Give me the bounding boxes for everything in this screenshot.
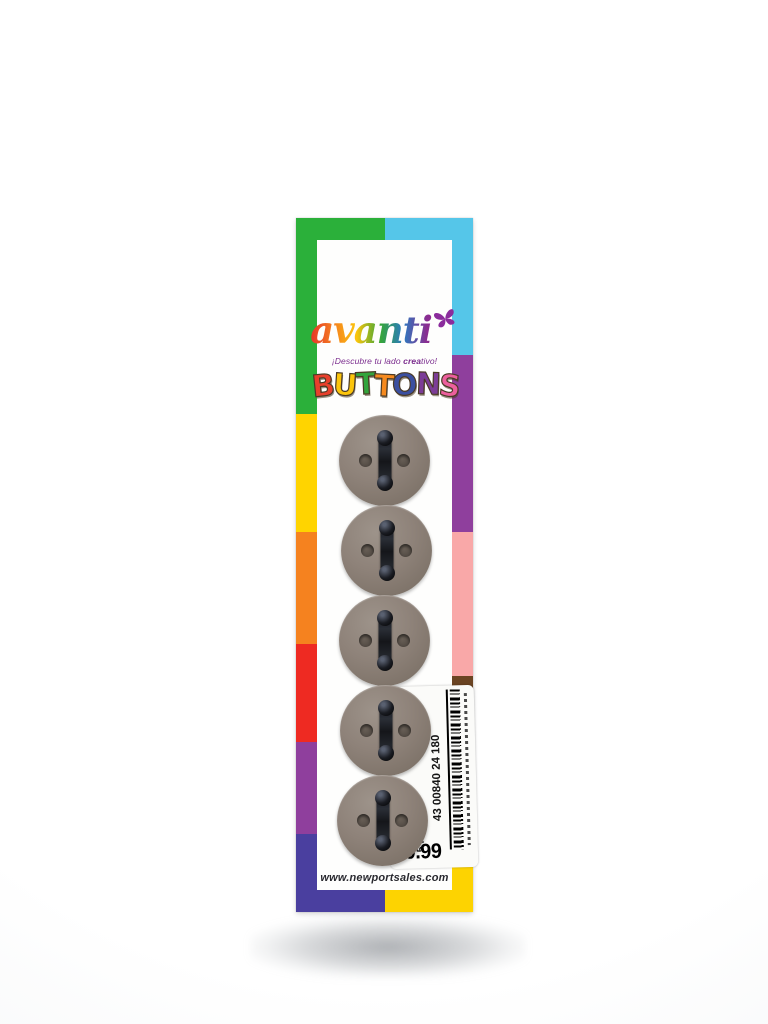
button-hole <box>359 454 372 467</box>
tagline-bold-text: crea <box>403 356 421 366</box>
button-card: avanti ¡Descubre tu lado creativo! BUTTO… <box>296 218 473 912</box>
sewing-button <box>337 775 428 866</box>
border-segment <box>296 532 317 643</box>
button-hole <box>359 634 372 647</box>
title-letter: T <box>355 368 375 403</box>
thread-knot <box>379 520 395 536</box>
thread-knot <box>377 610 393 626</box>
tagline-text-end: tivo! <box>421 356 437 366</box>
barcode <box>450 689 464 849</box>
border-segment <box>296 644 317 742</box>
butterfly-icon <box>429 303 460 333</box>
title-letter: U <box>332 368 357 403</box>
title-letter: O <box>392 369 417 404</box>
sewing-button <box>339 415 430 506</box>
thread-knot <box>378 700 394 716</box>
thread-knot <box>375 790 391 806</box>
title-letter: S <box>437 369 460 405</box>
product-title: BUTTONS <box>292 369 479 403</box>
button-hole <box>360 724 373 737</box>
button-hole <box>395 814 408 827</box>
thread-knot <box>379 565 395 581</box>
button-hole <box>397 454 410 467</box>
card-drop-shadow <box>250 916 526 978</box>
sewing-button <box>341 505 432 596</box>
border-segment <box>296 414 317 532</box>
brand-logo: avanti <box>296 310 473 350</box>
border-segment <box>296 218 385 240</box>
website-url: www.newportsales.com <box>296 872 473 884</box>
thread-knot <box>378 745 394 761</box>
button-hole <box>361 544 374 557</box>
thread-knot <box>375 835 391 851</box>
border-segment <box>296 890 385 912</box>
sewing-button <box>339 595 430 686</box>
border-segment <box>385 890 474 912</box>
button-hole <box>399 544 412 557</box>
buttons-stack <box>339 415 431 865</box>
border-segment <box>452 532 473 676</box>
sewing-button <box>340 685 431 776</box>
border-segment <box>385 218 474 240</box>
button-hole <box>357 814 370 827</box>
thread-knot <box>377 430 393 446</box>
button-hole <box>397 634 410 647</box>
tagline-text: ¡Descubre tu lado <box>332 356 403 366</box>
border-top <box>296 218 473 240</box>
thread-knot <box>377 475 393 491</box>
border-bottom <box>296 890 473 912</box>
title-letter: T <box>373 370 393 405</box>
barcode-number: 43 00840 24 180 <box>429 694 445 862</box>
title-letter: N <box>415 368 439 403</box>
thread-knot <box>377 655 393 671</box>
button-hole <box>398 724 411 737</box>
border-segment <box>296 742 317 834</box>
barcode-fineprint <box>464 693 471 845</box>
brand-name: avanti <box>310 310 432 350</box>
brand-tagline: ¡Descubre tu lado creativo! <box>296 356 473 366</box>
